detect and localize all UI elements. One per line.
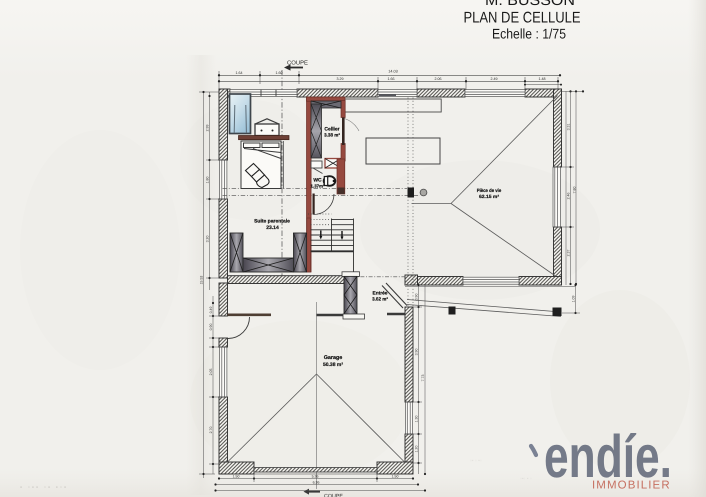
svg-text:1.30: 1.30 bbox=[415, 416, 419, 423]
svg-text:1.48: 1.48 bbox=[539, 77, 546, 81]
svg-text:2.70: 2.70 bbox=[209, 427, 213, 434]
svg-text:1.50: 1.50 bbox=[392, 475, 399, 479]
svg-text:2.46: 2.46 bbox=[567, 193, 571, 200]
svg-text:COUPE: COUPE bbox=[324, 494, 344, 497]
svg-text:3.31: 3.31 bbox=[567, 124, 571, 131]
svg-text:Echelle : 1/75: Echelle : 1/75 bbox=[492, 26, 566, 42]
svg-text:▫▪ ▫ ▪▫: ▫▪ ▫ ▪▫ bbox=[470, 458, 482, 464]
svg-text:3.62 m²: 3.62 m² bbox=[372, 297, 388, 302]
svg-text:23.14: 23.14 bbox=[266, 225, 279, 231]
svg-text:3.20: 3.20 bbox=[206, 236, 210, 243]
svg-text:15.53: 15.53 bbox=[200, 276, 204, 285]
svg-text:2.05: 2.05 bbox=[209, 369, 213, 376]
svg-text:▫▪▫ ▪ ▫: ▫▪▫ ▪ ▫ bbox=[520, 476, 532, 482]
svg-text:Suite parentale: Suite parentale bbox=[254, 219, 290, 225]
svg-text:2.49: 2.49 bbox=[491, 77, 498, 81]
svg-text:1.64: 1.64 bbox=[236, 71, 243, 75]
svg-text:7.73: 7.73 bbox=[421, 375, 425, 382]
svg-text:6.36: 6.36 bbox=[313, 481, 320, 485]
svg-text:2.06: 2.06 bbox=[435, 77, 442, 81]
svg-text:Garage: Garage bbox=[324, 355, 343, 361]
svg-text:IMMOBILIER: IMMOBILIER bbox=[592, 480, 671, 492]
svg-text:▪ ▫▪▪ ▫▪ ▪▫▪: ▪ ▫▪▪ ▫▪ ▪▫▪ bbox=[20, 485, 68, 491]
svg-text:1.60: 1.60 bbox=[276, 71, 283, 75]
svg-text:0.90: 0.90 bbox=[209, 324, 213, 331]
svg-text:1.50: 1.50 bbox=[233, 475, 240, 479]
svg-text:1.37m²: 1.37m² bbox=[311, 184, 325, 189]
svg-text:7.80: 7.80 bbox=[573, 187, 577, 194]
svg-text:1.09: 1.09 bbox=[572, 296, 576, 303]
svg-text:1.66: 1.66 bbox=[388, 77, 395, 81]
svg-text:50.38 m²: 50.38 m² bbox=[323, 362, 343, 368]
svg-text:0.90: 0.90 bbox=[415, 294, 419, 301]
svg-text:62.15 m²: 62.15 m² bbox=[479, 194, 500, 199]
svg-text:1.80: 1.80 bbox=[206, 177, 210, 184]
svg-text:1.20: 1.20 bbox=[415, 446, 419, 453]
svg-text:3.38 m²: 3.38 m² bbox=[324, 133, 340, 138]
svg-text:5.36: 5.36 bbox=[312, 475, 319, 479]
svg-text:3.29: 3.29 bbox=[337, 77, 344, 81]
svg-text:0.49: 0.49 bbox=[209, 307, 213, 314]
svg-text:PLAN DE CELLULE: PLAN DE CELLULE bbox=[464, 10, 581, 27]
svg-text:M. BUSSON: M. BUSSON bbox=[485, 0, 575, 9]
svg-text:2.37: 2.37 bbox=[567, 250, 571, 257]
svg-text:2.99: 2.99 bbox=[206, 125, 210, 132]
svg-text:3.90: 3.90 bbox=[415, 349, 419, 356]
svg-text:14.03: 14.03 bbox=[388, 70, 398, 74]
